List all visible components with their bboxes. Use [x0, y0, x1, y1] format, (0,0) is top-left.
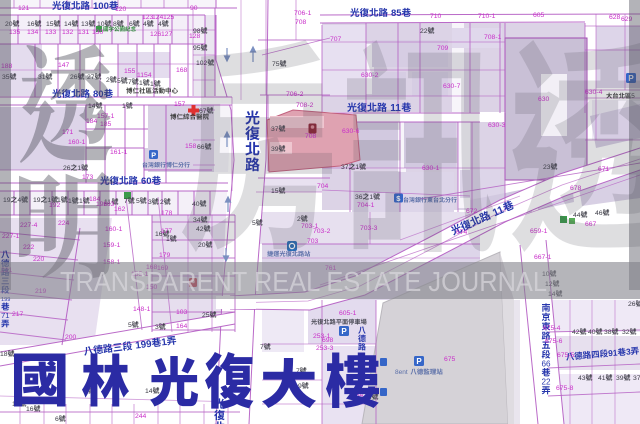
svg-text:161-1: 161-1 [110, 149, 128, 156]
svg-text:675-5: 675-5 [557, 352, 575, 359]
svg-text:158: 158 [185, 143, 197, 150]
svg-text:675-4: 675-4 [543, 325, 561, 332]
svg-text:P: P [416, 357, 422, 366]
svg-text:95: 95 [193, 45, 201, 52]
svg-text:26: 26 [628, 301, 636, 308]
svg-text:14: 14 [145, 388, 153, 395]
svg-text:P: P [151, 150, 156, 159]
svg-text:675-8: 675-8 [556, 385, 574, 392]
svg-text:7: 7 [260, 344, 264, 351]
svg-text:1: 1 [150, 81, 154, 88]
svg-text:10: 10 [97, 21, 105, 28]
svg-text:1: 1 [355, 164, 359, 171]
svg-text:147: 147 [58, 62, 70, 69]
svg-text:703-2: 703-2 [313, 228, 331, 235]
svg-text:8: 8 [113, 21, 117, 28]
svg-text:157: 157 [174, 101, 186, 108]
svg-text:132: 132 [62, 29, 74, 36]
svg-text:1: 1 [139, 80, 143, 87]
svg-text:708: 708 [295, 19, 307, 26]
svg-text:5: 5 [117, 78, 121, 85]
svg-text:15: 15 [46, 21, 54, 28]
svg-text:1: 1 [122, 103, 126, 110]
svg-text:46: 46 [595, 210, 603, 217]
svg-text:133: 133 [45, 29, 57, 36]
svg-text:5: 5 [128, 322, 132, 329]
svg-text:91: 91 [608, 347, 619, 358]
svg-text:16: 16 [27, 21, 35, 28]
svg-text:43: 43 [578, 375, 586, 382]
svg-text:674: 674 [456, 229, 468, 236]
svg-text:120: 120 [115, 6, 127, 13]
svg-text:38: 38 [604, 329, 612, 336]
svg-text:127: 127 [161, 31, 173, 38]
svg-text:90: 90 [190, 5, 198, 12]
svg-text:707: 707 [330, 36, 342, 43]
svg-text:708-1: 708-1 [484, 34, 502, 41]
svg-text:710-1: 710-1 [478, 13, 496, 20]
svg-text:39: 39 [616, 375, 624, 382]
svg-text:200: 200 [65, 334, 77, 341]
svg-text:85: 85 [391, 8, 402, 19]
svg-text:709: 709 [437, 45, 449, 52]
svg-text:126: 126 [150, 31, 162, 38]
svg-text:2: 2 [106, 77, 110, 84]
svg-text:253-1: 253-1 [313, 333, 331, 340]
svg-text:244: 244 [135, 413, 147, 420]
svg-text:1: 1 [77, 165, 81, 172]
svg-text:124: 124 [152, 14, 164, 21]
svg-text:148-1: 148-1 [133, 306, 151, 313]
svg-text:40: 40 [588, 329, 596, 336]
svg-text:220: 220 [33, 256, 45, 263]
svg-text:605: 605 [533, 12, 545, 19]
svg-text:164: 164 [176, 323, 188, 330]
svg-text:706-1: 706-1 [294, 10, 312, 17]
svg-text:1: 1 [369, 194, 373, 201]
svg-text:217: 217 [12, 311, 24, 318]
svg-text:134: 134 [27, 29, 39, 36]
svg-text:125: 125 [163, 14, 175, 21]
svg-text:60: 60 [141, 176, 152, 187]
svg-text:13: 13 [81, 21, 89, 28]
svg-text:1: 1 [166, 236, 170, 243]
svg-text:37: 37 [633, 375, 640, 382]
svg-text:41: 41 [598, 375, 606, 382]
svg-text:18: 18 [0, 351, 8, 358]
svg-text:2: 2 [160, 199, 164, 206]
svg-text:162: 162 [114, 206, 126, 213]
svg-text:675: 675 [444, 356, 456, 363]
svg-text:179: 179 [159, 252, 171, 259]
svg-text:675-6: 675-6 [545, 338, 563, 345]
svg-text:5: 5 [252, 220, 256, 227]
svg-text:628: 628 [609, 14, 621, 21]
svg-text:6: 6 [129, 21, 133, 28]
svg-text:5: 5 [136, 198, 140, 205]
svg-text:605-1: 605-1 [339, 310, 357, 317]
svg-text:103: 103 [176, 309, 188, 316]
svg-text:100: 100 [93, 1, 109, 12]
svg-text:71: 71 [1, 311, 10, 320]
svg-text:710: 710 [430, 13, 442, 20]
svg-text:6: 6 [55, 416, 59, 423]
svg-text:25: 25 [202, 312, 210, 319]
svg-text:1: 1 [79, 198, 83, 205]
svg-text:37: 37 [341, 164, 349, 171]
svg-text:44: 44 [573, 212, 581, 219]
svg-text:4: 4 [158, 21, 162, 28]
svg-text:7: 7 [124, 198, 128, 205]
svg-text:121: 121 [18, 5, 30, 12]
svg-text:14: 14 [64, 21, 72, 28]
svg-text:1154: 1154 [137, 72, 152, 79]
svg-text:3: 3 [155, 324, 159, 331]
svg-text:199: 199 [135, 339, 153, 352]
svg-text:160-1: 160-1 [68, 139, 86, 146]
svg-text:253-3: 253-3 [316, 345, 334, 352]
svg-text:16: 16 [26, 406, 34, 413]
svg-text:66: 66 [542, 359, 552, 368]
svg-text:704: 704 [317, 183, 329, 190]
svg-text:22: 22 [420, 28, 428, 35]
svg-text:128: 128 [189, 33, 201, 40]
svg-text:26: 26 [63, 165, 71, 172]
svg-text:TRANSPARENT REAL ESTATE JOURNA: TRANSPARENT REAL ESTATE JOURNAL [60, 266, 547, 297]
svg-text:8ent: 8ent [395, 369, 408, 376]
svg-text:155: 155 [124, 68, 136, 75]
svg-text:630-7: 630-7 [443, 83, 461, 90]
svg-text:22: 22 [542, 377, 552, 386]
svg-text:630-3: 630-3 [488, 122, 506, 129]
svg-text:32: 32 [622, 329, 630, 336]
svg-text:P: P [341, 327, 347, 336]
svg-text:19: 19 [33, 197, 41, 204]
svg-text:4: 4 [143, 21, 147, 28]
svg-text:7: 7 [128, 79, 132, 86]
svg-text:177: 177 [161, 228, 173, 235]
svg-text:42: 42 [572, 329, 580, 336]
svg-text:3: 3 [148, 199, 152, 206]
svg-text:130: 130 [92, 29, 104, 36]
svg-text:168: 168 [176, 67, 188, 74]
svg-text:178: 178 [161, 210, 173, 217]
svg-text:667-1: 667-1 [534, 254, 552, 261]
svg-text:131: 131 [78, 29, 90, 36]
